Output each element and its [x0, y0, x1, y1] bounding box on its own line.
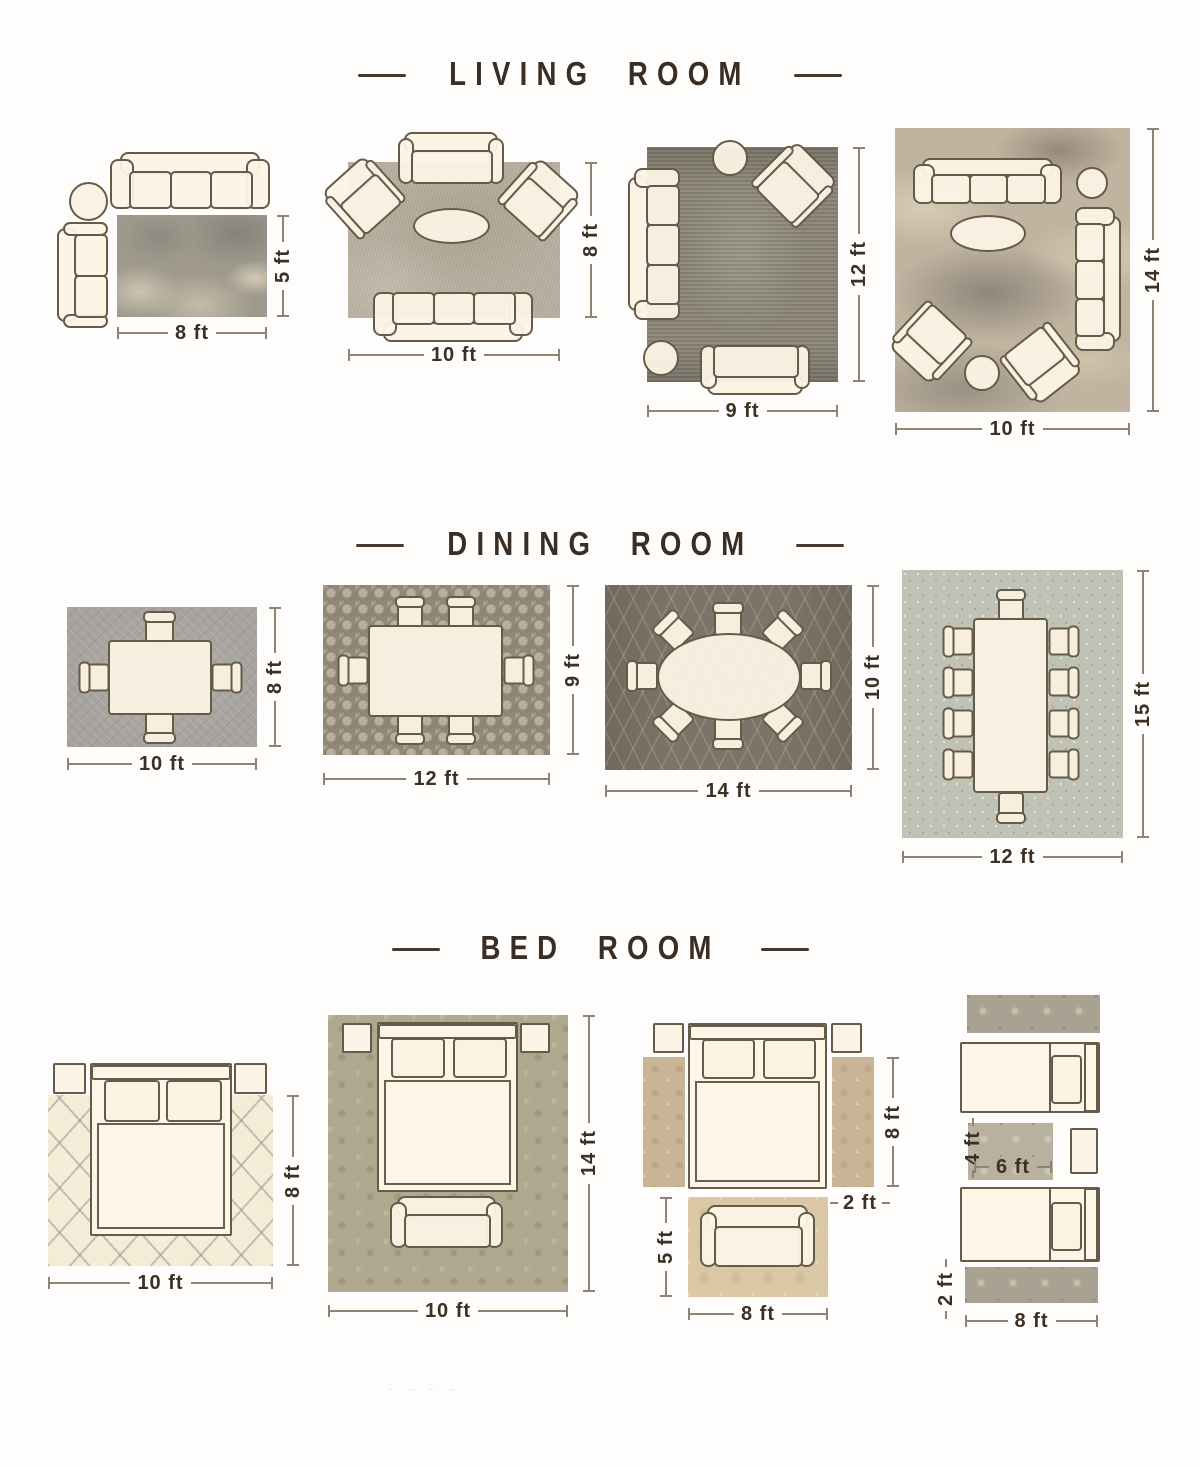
- dimension-tick: [1096, 1315, 1098, 1327]
- dimension-line: [1152, 130, 1154, 240]
- dimension-tick: [660, 1295, 672, 1297]
- dimension-label: 14 ft: [698, 781, 758, 801]
- dining-chair: [998, 792, 1024, 820]
- dimension-line: [690, 1313, 734, 1315]
- section-title: DINING ROOM: [447, 526, 753, 564]
- sofa-cushion: [210, 171, 253, 209]
- oval-coffee-table: [413, 208, 490, 244]
- bedroom-bench: [390, 1196, 503, 1248]
- bench-seat: [714, 1226, 801, 1267]
- dimension-tick: [867, 768, 879, 770]
- dimension-tick: [826, 1308, 828, 1320]
- dimension-tick: [566, 1305, 568, 1317]
- bed: [90, 1063, 232, 1236]
- bed-blanket: [384, 1080, 511, 1185]
- section-bed-room-header: BED ROOM: [0, 932, 1200, 966]
- sofa-cushion: [1075, 223, 1105, 262]
- dimension-tick: [1128, 423, 1130, 435]
- round-side-table: [712, 140, 748, 176]
- three-seat-sofa: [1075, 207, 1121, 351]
- bed-headboard: [1084, 1043, 1098, 1112]
- dimension-line: [282, 217, 284, 242]
- width-dimension: 8 ft: [117, 322, 267, 344]
- dimension-label: 10 ft: [424, 345, 484, 365]
- dimension-line: [892, 1146, 894, 1185]
- dining-chair: [83, 664, 110, 692]
- dimension-tick: [585, 316, 597, 318]
- dimension-line: [191, 1282, 271, 1284]
- dimension-line: [904, 856, 982, 858]
- living-rug-8x5: [117, 215, 267, 317]
- height-dimension: 8 ft: [282, 1095, 304, 1266]
- bedside-runner-rug: [832, 1057, 874, 1187]
- section-living-room-header: LIVING ROOM: [0, 58, 1200, 92]
- dimension-label: 10 ft: [863, 647, 883, 707]
- dimension-line: [759, 790, 850, 792]
- sofa-cushion: [646, 224, 680, 266]
- sofa-cushion: [1006, 174, 1046, 204]
- dining-chair: [145, 712, 174, 740]
- dimension-line: [665, 1271, 667, 1295]
- dimension-label: 15 ft: [1133, 674, 1153, 734]
- height-dimension: 12 ft: [848, 147, 870, 382]
- dining-chair: [947, 669, 974, 697]
- dimension-tick: [558, 349, 560, 361]
- dimension-tick: [255, 758, 257, 770]
- sofa-cushion: [1075, 298, 1105, 337]
- dining-chair: [1049, 669, 1076, 697]
- dimension-line: [976, 1166, 989, 1168]
- dimension-line: [69, 763, 132, 765]
- dimension-line: [274, 609, 276, 653]
- accent-rug-width-dimension: 6 ft: [974, 1156, 1052, 1178]
- dimension-tick: [583, 1290, 595, 1292]
- dimension-line: [1056, 1320, 1097, 1322]
- dimension-label: 8 ft: [734, 1304, 782, 1324]
- bed-headboard: [91, 1065, 231, 1080]
- dimension-tick: [548, 773, 550, 785]
- bed-pillow: [763, 1039, 816, 1079]
- dimension-line: [1037, 1166, 1050, 1168]
- dimension-tick: [265, 327, 267, 339]
- dimension-line: [830, 1202, 838, 1204]
- sofa-cushion: [931, 174, 971, 204]
- height-dimension: 9 ft: [562, 585, 584, 755]
- dimension-line: [945, 1259, 947, 1267]
- bench-seat: [404, 1214, 490, 1248]
- dimension-tick: [850, 785, 852, 797]
- dimension-line: [967, 1320, 1008, 1322]
- sofa-seats: [1075, 223, 1105, 335]
- dimension-line: [945, 1311, 947, 1319]
- bed-headboard: [1084, 1188, 1098, 1261]
- bench-cushion: [404, 1214, 492, 1248]
- round-ottoman: [643, 340, 679, 376]
- oval-coffee-table: [950, 215, 1026, 252]
- title-dash: [794, 74, 842, 77]
- dimension-line: [330, 1310, 418, 1312]
- width-dimension: 12 ft: [902, 846, 1123, 868]
- rug-size-guide: LIVING ROOM 5 ft 8 ft 8 ft 10 ft: [0, 0, 1200, 1467]
- nightstand: [53, 1063, 86, 1094]
- dining-chair: [998, 593, 1024, 621]
- dimension-line: [858, 149, 860, 234]
- dimension-label: 8 ft: [265, 653, 285, 701]
- dimension-label: 9 ft: [563, 646, 583, 694]
- nightstand: [831, 1023, 862, 1053]
- runner-height-dimension: 2 ft: [935, 1259, 957, 1311]
- height-dimension: 8 ft: [264, 607, 286, 747]
- bed-pillow: [166, 1080, 222, 1122]
- width-dimension: 10 ft: [895, 418, 1130, 440]
- foot-rug-width-dimension: 8 ft: [688, 1303, 828, 1325]
- twin-bed: [960, 1042, 1100, 1113]
- dining-chair: [947, 710, 974, 738]
- dimension-line: [858, 295, 860, 380]
- width-dimension: 10 ft: [67, 753, 257, 775]
- sofa-cushion: [129, 171, 172, 209]
- dimension-line: [607, 790, 698, 792]
- dimension-line: [119, 332, 168, 334]
- title-dash: [358, 74, 406, 77]
- sofa-seats: [646, 185, 680, 304]
- sofa-seats: [129, 171, 251, 209]
- dining-table: [973, 618, 1048, 793]
- dining-chair: [145, 615, 174, 643]
- dining-chair: [504, 657, 531, 685]
- dimension-line: [590, 164, 592, 216]
- round-side-table: [1076, 167, 1108, 199]
- dimension-label: 10 ft: [418, 1301, 478, 1321]
- sofa-back: [707, 375, 804, 395]
- dimension-tick: [836, 405, 838, 417]
- sofa-seats: [74, 234, 108, 317]
- dining-chair: [342, 657, 369, 685]
- dimension-line: [1142, 572, 1144, 674]
- width-dimension: 12 ft: [323, 768, 550, 790]
- sofa-seats: [931, 174, 1044, 204]
- dimension-label: 10 ft: [130, 1273, 190, 1293]
- nightstand: [1070, 1128, 1098, 1174]
- sofa-cushion: [473, 292, 516, 325]
- bed-blanket: [695, 1081, 820, 1182]
- dimension-line: [767, 410, 837, 412]
- dimension-line: [782, 1313, 826, 1315]
- dimension-line: [325, 778, 406, 780]
- sofa-cushion: [646, 185, 680, 227]
- dining-chair: [212, 664, 239, 692]
- bed-pillow: [1051, 1055, 1082, 1104]
- dimension-label: 14 ft: [1143, 240, 1163, 300]
- height-dimension: 5 ft: [272, 215, 294, 317]
- sofa-cushion: [74, 275, 108, 318]
- dimension-line: [872, 587, 874, 647]
- dimension-label: 8 ft: [883, 1098, 903, 1146]
- dimension-label: 2 ft: [936, 1267, 956, 1311]
- height-dimension: 15 ft: [1132, 570, 1154, 838]
- dimension-tick: [277, 315, 289, 317]
- width-dimension: 14 ft: [605, 780, 852, 802]
- three-seat-sofa: [373, 292, 533, 342]
- dimension-line: [274, 701, 276, 745]
- dimension-line: [872, 708, 874, 768]
- dimension-tick: [1147, 410, 1159, 412]
- dimension-line: [572, 587, 574, 646]
- bed-pillow: [391, 1038, 445, 1078]
- bed: [688, 1023, 827, 1189]
- sofa-seats: [392, 292, 514, 325]
- height-dimension: 10 ft: [862, 585, 884, 770]
- sofa-cushion: [170, 171, 213, 209]
- dimension-label: 8 ft: [1008, 1311, 1056, 1331]
- dimension-tick: [1137, 836, 1149, 838]
- oval-dining-table: [657, 633, 801, 721]
- dimension-label: 12 ft: [849, 234, 869, 294]
- loveseat: [57, 222, 108, 328]
- width-dimension: 10 ft: [48, 1272, 273, 1294]
- dimension-label: 12 ft: [406, 769, 466, 789]
- dimension-line: [1043, 856, 1121, 858]
- runner-rug: [965, 1267, 1098, 1303]
- dimension-line: [972, 1118, 974, 1126]
- dimension-tick: [567, 753, 579, 755]
- dimension-line: [897, 428, 982, 430]
- dining-chair: [714, 606, 742, 636]
- dimension-line: [478, 1310, 566, 1312]
- bedroom-bench: [700, 1205, 815, 1267]
- dimension-tick: [887, 1185, 899, 1187]
- nightstand: [653, 1023, 684, 1053]
- section-title: LIVING ROOM: [449, 56, 750, 94]
- bed-pillow: [1051, 1202, 1082, 1251]
- dining-chair: [800, 662, 828, 690]
- dimension-line: [649, 410, 719, 412]
- section-title: BED ROOM: [480, 930, 720, 968]
- dimension-label: 12 ft: [982, 847, 1042, 867]
- dimension-label: 8 ft: [581, 216, 601, 264]
- section-dining-room-header: DINING ROOM: [0, 528, 1200, 562]
- bed-pillow: [702, 1039, 755, 1079]
- bed-headboard: [689, 1025, 826, 1040]
- bench-cushion: [714, 1226, 803, 1267]
- dimension-label: 2 ft: [838, 1193, 882, 1213]
- dimension-line: [665, 1199, 667, 1223]
- sofa-cushion: [433, 292, 476, 325]
- three-seat-sofa: [110, 152, 270, 209]
- dimension-line: [484, 354, 558, 356]
- three-seat-sofa: [913, 158, 1062, 204]
- dining-chair: [1049, 628, 1076, 656]
- bed-blanket: [97, 1123, 225, 1229]
- dimension-line: [588, 1184, 590, 1290]
- bed-height-dimension: 8 ft: [882, 1057, 904, 1187]
- dining-chair: [630, 662, 658, 690]
- bed-headboard: [378, 1024, 517, 1039]
- loveseat: [700, 345, 810, 395]
- dimension-line: [467, 778, 548, 780]
- foot-rug-height-dimension: 5 ft: [655, 1197, 677, 1297]
- dimension-label: 10 ft: [982, 419, 1042, 439]
- dimension-label: 8 ft: [168, 323, 216, 343]
- runner-width-dimension: 2 ft: [830, 1192, 884, 1214]
- bed-pillow: [453, 1038, 507, 1078]
- sofa-cushion: [1075, 260, 1105, 299]
- height-dimension: 14 ft: [578, 1015, 600, 1292]
- title-dash: [356, 544, 404, 547]
- dimension-tick: [1121, 851, 1123, 863]
- dimension-line: [882, 1202, 890, 1204]
- dimension-line: [282, 290, 284, 315]
- sofa-cushion: [411, 150, 494, 184]
- dining-table: [368, 625, 503, 717]
- dimension-line: [1043, 428, 1128, 430]
- sofa-back: [383, 322, 524, 342]
- sofa-seats: [713, 345, 797, 378]
- nightstand: [520, 1023, 550, 1053]
- dimension-tick: [287, 1264, 299, 1266]
- nightstand: [234, 1063, 267, 1094]
- runner-rug: [967, 995, 1100, 1033]
- bed-pillow: [104, 1080, 160, 1122]
- dimension-line: [588, 1017, 590, 1123]
- dimension-label: 5 ft: [273, 242, 293, 290]
- dimension-tick: [271, 1277, 273, 1289]
- dimension-label: 14 ft: [579, 1123, 599, 1183]
- dimension-label: 8 ft: [283, 1157, 303, 1205]
- round-ottoman: [964, 355, 1000, 391]
- nightstand: [342, 1023, 372, 1053]
- dimension-label: 5 ft: [656, 1223, 676, 1271]
- dimension-tick: [269, 745, 281, 747]
- title-dash: [761, 948, 809, 951]
- loveseat: [398, 132, 504, 184]
- dimension-line: [216, 332, 265, 334]
- dimension-line: [1142, 734, 1144, 836]
- watermark: – – – –: [388, 1384, 461, 1395]
- dining-chair: [1049, 751, 1076, 779]
- dimension-label: 9 ft: [719, 401, 767, 421]
- sofa-cushion: [392, 292, 435, 325]
- dining-chair: [1049, 710, 1076, 738]
- sofa-cushion: [646, 264, 680, 306]
- sofa-seats: [411, 150, 492, 184]
- width-dimension: 8 ft: [965, 1310, 1098, 1332]
- round-side-table: [69, 182, 108, 221]
- dimension-line: [572, 694, 574, 753]
- dimension-label: 10 ft: [132, 754, 192, 774]
- dimension-line: [1152, 300, 1154, 410]
- dimension-tick: [853, 380, 865, 382]
- dining-chair: [947, 751, 974, 779]
- dimension-line: [892, 1059, 894, 1098]
- bed: [377, 1022, 518, 1192]
- height-dimension: 14 ft: [1142, 128, 1164, 412]
- dining-chair: [947, 628, 974, 656]
- sofa-cushion: [969, 174, 1009, 204]
- width-dimension: 10 ft: [348, 344, 560, 366]
- width-dimension: 9 ft: [647, 400, 838, 422]
- bedside-runner-rug: [643, 1057, 685, 1187]
- dimension-tick: [1050, 1161, 1052, 1173]
- twin-bed: [960, 1187, 1100, 1262]
- sofa-cushion: [74, 234, 108, 277]
- dimension-line: [292, 1205, 294, 1265]
- title-dash: [796, 544, 844, 547]
- dining-table: [108, 640, 212, 715]
- title-dash: [392, 948, 440, 951]
- dimension-label: 6 ft: [989, 1157, 1037, 1177]
- dimension-line: [350, 354, 424, 356]
- dimension-line: [50, 1282, 130, 1284]
- height-dimension: 8 ft: [580, 162, 602, 318]
- three-seat-sofa: [628, 168, 680, 320]
- width-dimension: 10 ft: [328, 1300, 568, 1322]
- sofa-cushion: [713, 345, 799, 378]
- dimension-line: [192, 763, 255, 765]
- dimension-line: [590, 264, 592, 316]
- dimension-line: [292, 1097, 294, 1157]
